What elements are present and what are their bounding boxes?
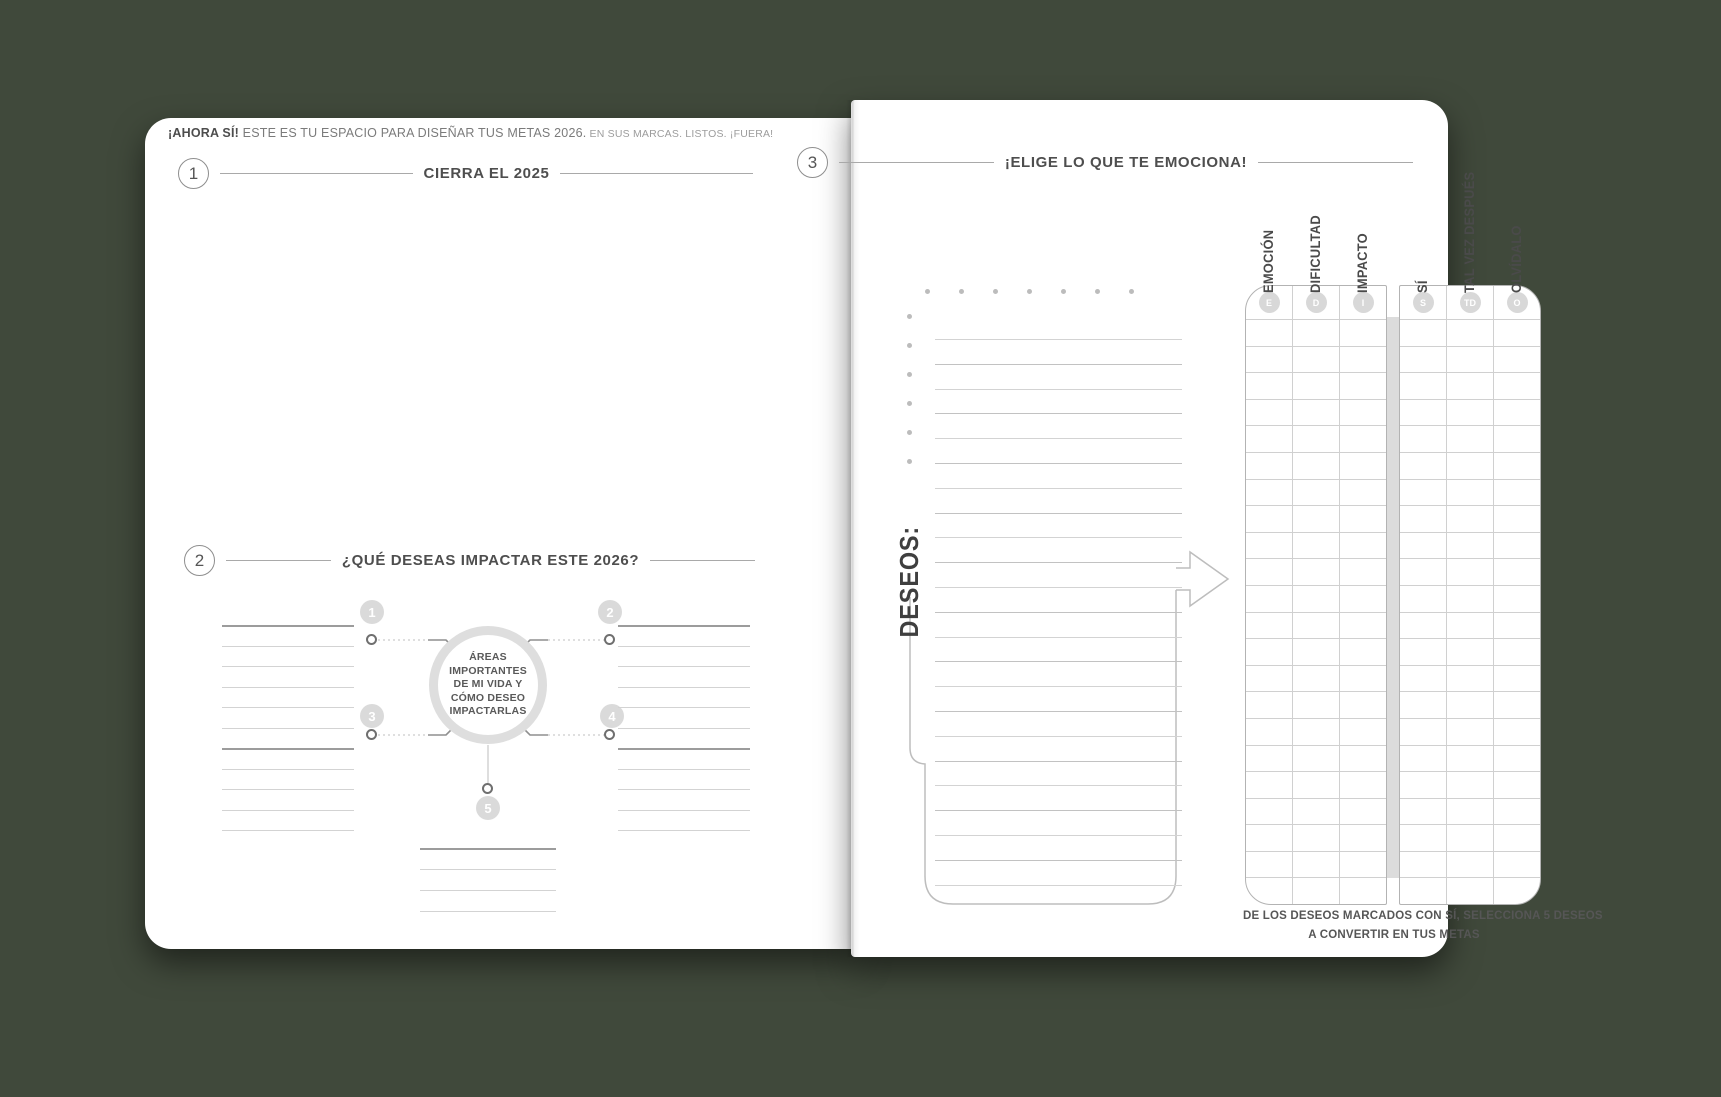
table-row bbox=[1400, 505, 1540, 532]
table-cell-I[interactable] bbox=[1339, 852, 1386, 878]
table-row bbox=[1246, 558, 1386, 585]
section-2-title: ¿QUÉ DESEAS IMPACTAR ESTE 2026? bbox=[342, 552, 639, 569]
table-row bbox=[1400, 452, 1540, 479]
table-cell-TD[interactable] bbox=[1446, 852, 1493, 878]
table-cell-O[interactable] bbox=[1493, 373, 1540, 399]
table-row bbox=[1400, 691, 1540, 718]
table-cell-TD[interactable] bbox=[1446, 506, 1493, 532]
table-cell-TD[interactable] bbox=[1446, 480, 1493, 506]
table-row bbox=[1400, 798, 1540, 825]
table-cell-I[interactable] bbox=[1339, 878, 1386, 904]
table-cell-TD[interactable] bbox=[1446, 692, 1493, 718]
table-group-criterios: EDI bbox=[1245, 285, 1387, 905]
table-cell-TD[interactable] bbox=[1446, 400, 1493, 426]
writing-line bbox=[420, 890, 556, 891]
table-cell-D[interactable] bbox=[1292, 666, 1339, 692]
section-1-number: 1 bbox=[178, 158, 209, 189]
table-cell-D[interactable] bbox=[1292, 586, 1339, 612]
writing-line bbox=[618, 728, 750, 729]
table-cell-D[interactable] bbox=[1292, 719, 1339, 745]
guide-dot bbox=[1129, 289, 1134, 294]
table-cell-D[interactable] bbox=[1292, 320, 1339, 346]
section-3-number: 3 bbox=[797, 147, 828, 178]
column-badge-I: I bbox=[1353, 292, 1374, 313]
table-cell-I[interactable] bbox=[1339, 825, 1386, 851]
table-cell-S[interactable] bbox=[1400, 400, 1446, 426]
table-cell-S[interactable] bbox=[1400, 347, 1446, 373]
table-cell-D[interactable] bbox=[1292, 453, 1339, 479]
writing-line bbox=[935, 885, 1182, 886]
table-cell-S[interactable] bbox=[1400, 852, 1446, 878]
table-row bbox=[1246, 824, 1386, 851]
intro-main: ESTE ES TU ESPACIO PARA DISEÑAR TUS META… bbox=[239, 126, 586, 140]
column-header-D: DIFICULTAD bbox=[1309, 215, 1323, 293]
table-cell-D[interactable] bbox=[1292, 746, 1339, 772]
table-cell-I[interactable] bbox=[1339, 746, 1386, 772]
table-cell-TD[interactable] bbox=[1446, 878, 1493, 904]
table-cell-TD[interactable] bbox=[1446, 347, 1493, 373]
table-cell-O[interactable] bbox=[1493, 746, 1540, 772]
writing-line bbox=[222, 666, 354, 667]
table-cell-E[interactable] bbox=[1246, 320, 1292, 346]
table-cell-E[interactable] bbox=[1246, 852, 1292, 878]
table-cell-S[interactable] bbox=[1400, 639, 1446, 665]
writing-line bbox=[935, 785, 1182, 786]
table-cell-O[interactable] bbox=[1493, 426, 1540, 452]
table-cell-E[interactable] bbox=[1246, 373, 1292, 399]
guide-dot bbox=[1027, 289, 1032, 294]
writing-line bbox=[222, 830, 354, 831]
column-badge-D: D bbox=[1306, 292, 1327, 313]
table-cell-S[interactable] bbox=[1400, 692, 1446, 718]
table-cell-S[interactable] bbox=[1400, 533, 1446, 559]
section-1-title: CIERRA EL 2025 bbox=[424, 165, 550, 182]
deseos-label: DESEOS: bbox=[895, 539, 923, 638]
table-cell-D[interactable] bbox=[1292, 506, 1339, 532]
table-cell-E[interactable] bbox=[1246, 453, 1292, 479]
table-row bbox=[1400, 346, 1540, 373]
table-cell-S[interactable] bbox=[1400, 320, 1446, 346]
table-cell-O[interactable] bbox=[1493, 559, 1540, 585]
table-cell-E[interactable] bbox=[1246, 426, 1292, 452]
page-gutter bbox=[846, 100, 860, 957]
table-cell-O[interactable] bbox=[1493, 347, 1540, 373]
table-cell-I[interactable] bbox=[1339, 719, 1386, 745]
table-row bbox=[1400, 399, 1540, 426]
table-row bbox=[1246, 532, 1386, 559]
table-cell-E[interactable] bbox=[1246, 719, 1292, 745]
table-cell-TD[interactable] bbox=[1446, 746, 1493, 772]
writing-line bbox=[935, 562, 1182, 563]
writing-line bbox=[618, 810, 750, 811]
writing-line bbox=[618, 707, 750, 708]
writing-line bbox=[935, 488, 1182, 489]
writing-line bbox=[618, 625, 750, 627]
table-cell-O[interactable] bbox=[1493, 453, 1540, 479]
table-cell-E[interactable] bbox=[1246, 746, 1292, 772]
table-cell-D[interactable] bbox=[1292, 533, 1339, 559]
table-cell-O[interactable] bbox=[1493, 639, 1540, 665]
table-cell-TD[interactable] bbox=[1446, 719, 1493, 745]
writing-line bbox=[420, 848, 556, 850]
table-cell-S[interactable] bbox=[1400, 719, 1446, 745]
table-cell-S[interactable] bbox=[1400, 426, 1446, 452]
table-cell-S[interactable] bbox=[1400, 559, 1446, 585]
table-row bbox=[1400, 718, 1540, 745]
table-cell-E[interactable] bbox=[1246, 480, 1292, 506]
table-row bbox=[1400, 585, 1540, 612]
table-cell-TD[interactable] bbox=[1446, 586, 1493, 612]
table-row bbox=[1246, 505, 1386, 532]
table-cell-I[interactable] bbox=[1339, 506, 1386, 532]
section-1-header: 1 CIERRA EL 2025 bbox=[178, 158, 764, 189]
section-3-header: 3 ¡ELIGE LO QUE TE EMOCIONA! bbox=[797, 147, 1424, 178]
table-cell-S[interactable] bbox=[1400, 506, 1446, 532]
table-cell-O[interactable] bbox=[1493, 878, 1540, 904]
table-cell-TD[interactable] bbox=[1446, 799, 1493, 825]
table-cell-S[interactable] bbox=[1400, 373, 1446, 399]
table-cell-S[interactable] bbox=[1400, 799, 1446, 825]
cierra-2025-writing-area[interactable] bbox=[170, 205, 770, 495]
spoke-number-1: 1 bbox=[360, 600, 384, 624]
table-cell-TD[interactable] bbox=[1446, 772, 1493, 798]
writing-line bbox=[222, 810, 354, 811]
intro-line: ¡AHORA SÍ! ESTE ES TU ESPACIO PARA DISEÑ… bbox=[168, 124, 772, 142]
table-row bbox=[1246, 771, 1386, 798]
writing-line bbox=[222, 687, 354, 688]
writing-line bbox=[935, 661, 1182, 662]
writing-line bbox=[935, 438, 1182, 439]
writing-line bbox=[618, 748, 750, 750]
table-cell-D[interactable] bbox=[1292, 852, 1339, 878]
table-cell-S[interactable] bbox=[1400, 613, 1446, 639]
guide-dot bbox=[907, 459, 912, 464]
table-row bbox=[1246, 425, 1386, 452]
table-cell-D[interactable] bbox=[1292, 878, 1339, 904]
column-header-TD: TAL VEZ DESPUÉS bbox=[1463, 172, 1477, 293]
table-row bbox=[1246, 718, 1386, 745]
table-cell-S[interactable] bbox=[1400, 586, 1446, 612]
table-cell-D[interactable] bbox=[1292, 825, 1339, 851]
writing-line bbox=[935, 364, 1182, 365]
life-areas-circle: ÁREAS IMPORTANTES DE MI VIDA Y CÓMO DESE… bbox=[429, 626, 547, 744]
table-cell-I[interactable] bbox=[1339, 799, 1386, 825]
table-cell-S[interactable] bbox=[1400, 878, 1446, 904]
table-row bbox=[1246, 399, 1386, 426]
writing-line bbox=[618, 646, 750, 647]
writing-line bbox=[935, 711, 1182, 712]
table-row bbox=[1246, 612, 1386, 639]
table-cell-E[interactable] bbox=[1246, 533, 1292, 559]
table-row bbox=[1246, 372, 1386, 399]
table-separator bbox=[1387, 317, 1399, 878]
table-cell-S[interactable] bbox=[1400, 825, 1446, 851]
header-rule bbox=[560, 173, 753, 174]
writing-line bbox=[935, 537, 1182, 538]
table-cell-S[interactable] bbox=[1400, 772, 1446, 798]
table-cell-I[interactable] bbox=[1339, 772, 1386, 798]
writing-line bbox=[935, 736, 1182, 737]
table-cell-D[interactable] bbox=[1292, 692, 1339, 718]
table-row bbox=[1400, 771, 1540, 798]
table-row bbox=[1246, 745, 1386, 772]
table-cell-TD[interactable] bbox=[1446, 613, 1493, 639]
section-2-number: 2 bbox=[184, 545, 215, 576]
table-row bbox=[1400, 479, 1540, 506]
table-cell-O[interactable] bbox=[1493, 400, 1540, 426]
table-row bbox=[1400, 372, 1540, 399]
guide-dot bbox=[959, 289, 964, 294]
table-cell-TD[interactable] bbox=[1446, 373, 1493, 399]
intro-tail: EN SUS MARCAS. LISTOS. ¡FUERA! bbox=[586, 128, 773, 140]
table-row bbox=[1246, 319, 1386, 346]
guide-dot bbox=[907, 372, 912, 377]
writing-line bbox=[935, 637, 1182, 638]
table-cell-O[interactable] bbox=[1493, 772, 1540, 798]
header-rule bbox=[226, 560, 331, 561]
header-rule bbox=[839, 162, 994, 163]
column-header-E: EMOCIÓN bbox=[1262, 230, 1276, 293]
spoke-ring-1 bbox=[366, 634, 377, 645]
table-cell-D[interactable] bbox=[1292, 480, 1339, 506]
table-footer-line2: A CONVERTIR EN TUS METAS bbox=[1243, 929, 1545, 941]
table-cell-E[interactable] bbox=[1246, 666, 1292, 692]
table-cell-O[interactable] bbox=[1493, 692, 1540, 718]
writing-line bbox=[222, 646, 354, 647]
table-cell-O[interactable] bbox=[1493, 613, 1540, 639]
table-row bbox=[1400, 532, 1540, 559]
table-footer-line1: DE LOS DESEOS MARCADOS CON SÍ, SELECCION… bbox=[1243, 910, 1545, 922]
table-cell-I[interactable] bbox=[1339, 453, 1386, 479]
guide-dot bbox=[907, 430, 912, 435]
spoke-ring-3 bbox=[366, 729, 377, 740]
table-cell-E[interactable] bbox=[1246, 613, 1292, 639]
table-cell-I[interactable] bbox=[1339, 666, 1386, 692]
writing-line bbox=[935, 513, 1182, 514]
writing-line bbox=[618, 687, 750, 688]
table-cell-I[interactable] bbox=[1339, 639, 1386, 665]
impact-list-bottom-area[interactable] bbox=[415, 840, 561, 930]
guide-dot bbox=[907, 314, 912, 319]
writing-line bbox=[935, 761, 1182, 762]
table-cell-D[interactable] bbox=[1292, 799, 1339, 825]
table-cell-O[interactable] bbox=[1493, 533, 1540, 559]
writing-line bbox=[420, 911, 556, 912]
table-cell-E[interactable] bbox=[1246, 506, 1292, 532]
table-cell-E[interactable] bbox=[1246, 559, 1292, 585]
guide-dot bbox=[907, 343, 912, 348]
section-3-title: ¡ELIGE LO QUE TE EMOCIONA! bbox=[1005, 154, 1247, 171]
header-rule bbox=[1258, 162, 1413, 163]
writing-line bbox=[935, 463, 1182, 464]
column-badge-O: O bbox=[1507, 292, 1528, 313]
life-areas-circle-text: ÁREAS IMPORTANTES DE MI VIDA Y CÓMO DESE… bbox=[442, 651, 534, 719]
writing-line bbox=[618, 769, 750, 770]
table-cell-O[interactable] bbox=[1493, 825, 1540, 851]
planner-spread: ¡AHORA SÍ! ESTE ES TU ESPACIO PARA DISEÑ… bbox=[0, 0, 1721, 1097]
table-cell-O[interactable] bbox=[1493, 586, 1540, 612]
table-cell-O[interactable] bbox=[1493, 506, 1540, 532]
table-row bbox=[1246, 798, 1386, 825]
table-row bbox=[1246, 877, 1386, 904]
table-cell-D[interactable] bbox=[1292, 559, 1339, 585]
table-cell-D[interactable] bbox=[1292, 426, 1339, 452]
table-cell-E[interactable] bbox=[1246, 586, 1292, 612]
writing-line bbox=[222, 769, 354, 770]
impact-list-left-area[interactable] bbox=[210, 615, 360, 845]
header-rule bbox=[220, 173, 413, 174]
table-cell-E[interactable] bbox=[1246, 825, 1292, 851]
table-cell-O[interactable] bbox=[1493, 799, 1540, 825]
table-cell-TD[interactable] bbox=[1446, 639, 1493, 665]
table-cell-E[interactable] bbox=[1246, 639, 1292, 665]
writing-line bbox=[935, 612, 1182, 613]
table-cell-E[interactable] bbox=[1246, 400, 1292, 426]
guide-dot bbox=[1095, 289, 1100, 294]
table-cell-O[interactable] bbox=[1493, 480, 1540, 506]
table-cell-I[interactable] bbox=[1339, 559, 1386, 585]
table-row bbox=[1246, 638, 1386, 665]
guide-dot bbox=[907, 401, 912, 406]
table-cell-O[interactable] bbox=[1493, 719, 1540, 745]
table-cell-D[interactable] bbox=[1292, 373, 1339, 399]
table-cell-I[interactable] bbox=[1339, 613, 1386, 639]
writing-line bbox=[935, 587, 1182, 588]
writing-line bbox=[420, 869, 556, 870]
guide-dot bbox=[1061, 289, 1066, 294]
column-badge-TD: TD bbox=[1460, 292, 1481, 313]
spoke-ring-5 bbox=[482, 783, 493, 794]
writing-line bbox=[222, 748, 354, 750]
table-row bbox=[1400, 425, 1540, 452]
table-cell-E[interactable] bbox=[1246, 347, 1292, 373]
writing-line bbox=[935, 413, 1182, 414]
table-row bbox=[1400, 745, 1540, 772]
table-row bbox=[1400, 612, 1540, 639]
writing-line bbox=[935, 810, 1182, 811]
table-cell-E[interactable] bbox=[1246, 772, 1292, 798]
table-cell-I[interactable] bbox=[1339, 586, 1386, 612]
writing-line bbox=[618, 789, 750, 790]
table-cell-TD[interactable] bbox=[1446, 426, 1493, 452]
header-rule bbox=[650, 560, 755, 561]
table-cell-E[interactable] bbox=[1246, 692, 1292, 718]
table-row bbox=[1246, 346, 1386, 373]
table-cell-I[interactable] bbox=[1339, 320, 1386, 346]
table-cell-S[interactable] bbox=[1400, 480, 1446, 506]
table-row bbox=[1400, 319, 1540, 346]
column-badge-S: S bbox=[1413, 292, 1434, 313]
table-row bbox=[1400, 638, 1540, 665]
table-cell-TD[interactable] bbox=[1446, 559, 1493, 585]
table-cell-I[interactable] bbox=[1339, 400, 1386, 426]
table-cell-TD[interactable] bbox=[1446, 666, 1493, 692]
table-cell-O[interactable] bbox=[1493, 320, 1540, 346]
table-row bbox=[1246, 585, 1386, 612]
table-row bbox=[1400, 558, 1540, 585]
writing-line bbox=[618, 830, 750, 831]
table-cell-I[interactable] bbox=[1339, 533, 1386, 559]
table-cell-TD[interactable] bbox=[1446, 453, 1493, 479]
column-badge-E: E bbox=[1259, 292, 1280, 313]
table-row bbox=[1246, 691, 1386, 718]
writing-line bbox=[935, 389, 1182, 390]
column-header-I: IMPACTO bbox=[1356, 233, 1370, 293]
table-cell-E[interactable] bbox=[1246, 799, 1292, 825]
intro-lead: ¡AHORA SÍ! bbox=[168, 126, 239, 140]
table-cell-I[interactable] bbox=[1339, 426, 1386, 452]
writing-line bbox=[222, 789, 354, 790]
table-cell-D[interactable] bbox=[1292, 639, 1339, 665]
column-header-S: SÍ bbox=[1416, 280, 1430, 293]
table-cell-TD[interactable] bbox=[1446, 320, 1493, 346]
table-cell-I[interactable] bbox=[1339, 692, 1386, 718]
table-row bbox=[1400, 877, 1540, 904]
writing-line bbox=[935, 339, 1182, 340]
table-row bbox=[1400, 665, 1540, 692]
writing-line bbox=[222, 625, 354, 627]
table-cell-TD[interactable] bbox=[1446, 825, 1493, 851]
table-row bbox=[1246, 665, 1386, 692]
column-header-O: OLVÍDALO bbox=[1510, 225, 1524, 293]
table-cell-I[interactable] bbox=[1339, 347, 1386, 373]
table-cell-D[interactable] bbox=[1292, 400, 1339, 426]
writing-line bbox=[935, 835, 1182, 836]
table-cell-D[interactable] bbox=[1292, 772, 1339, 798]
table-cell-I[interactable] bbox=[1339, 480, 1386, 506]
table-row bbox=[1246, 452, 1386, 479]
table-cell-D[interactable] bbox=[1292, 613, 1339, 639]
table-cell-D[interactable] bbox=[1292, 347, 1339, 373]
guide-dot bbox=[925, 289, 930, 294]
table-cell-I[interactable] bbox=[1339, 373, 1386, 399]
table-cell-S[interactable] bbox=[1400, 453, 1446, 479]
table-cell-O[interactable] bbox=[1493, 852, 1540, 878]
writing-line bbox=[222, 707, 354, 708]
section-2-header: 2 ¿QUÉ DESEAS IMPACTAR ESTE 2026? bbox=[184, 545, 766, 576]
spoke-number-5: 5 bbox=[476, 796, 500, 820]
impact-list-right-area[interactable] bbox=[610, 615, 760, 845]
table-cell-S[interactable] bbox=[1400, 666, 1446, 692]
spoke-number-3: 3 bbox=[360, 704, 384, 728]
writing-line bbox=[935, 860, 1182, 861]
table-row bbox=[1246, 851, 1386, 878]
table-row bbox=[1400, 824, 1540, 851]
writing-line bbox=[222, 728, 354, 729]
table-cell-TD[interactable] bbox=[1446, 533, 1493, 559]
table-group-decision: STDO bbox=[1399, 285, 1541, 905]
writing-line bbox=[618, 666, 750, 667]
table-cell-S[interactable] bbox=[1400, 746, 1446, 772]
table-row bbox=[1246, 479, 1386, 506]
table-row bbox=[1400, 851, 1540, 878]
writing-line bbox=[935, 686, 1182, 687]
table-cell-O[interactable] bbox=[1493, 666, 1540, 692]
guide-dot bbox=[993, 289, 998, 294]
